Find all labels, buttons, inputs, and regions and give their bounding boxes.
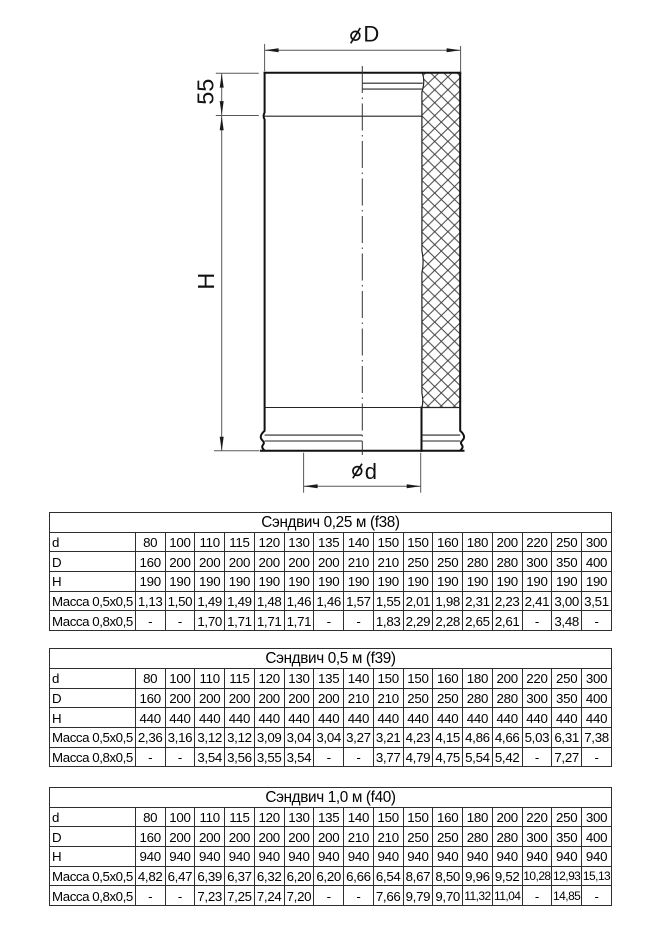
svg-text:d: d <box>365 459 377 484</box>
svg-text:H: H <box>193 273 219 290</box>
svg-text:55: 55 <box>192 79 218 105</box>
svg-text:D: D <box>363 22 379 47</box>
